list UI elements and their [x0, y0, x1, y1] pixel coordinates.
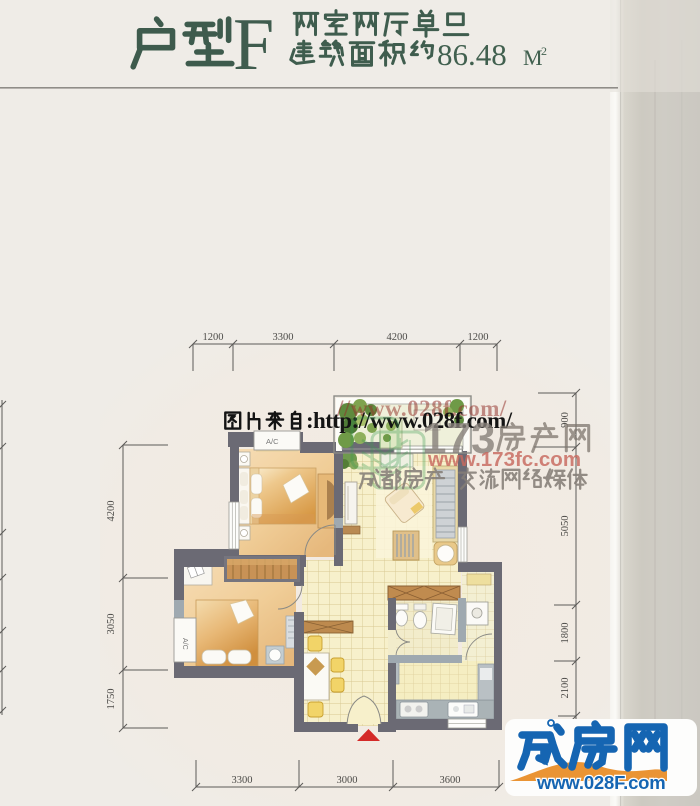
svg-text:1200: 1200 [468, 332, 489, 343]
svg-text:1750: 1750 [106, 689, 117, 710]
svg-text:3600: 3600 [440, 775, 461, 786]
svg-text:3300: 3300 [273, 332, 294, 343]
svg-text:86.48: 86.48 [437, 37, 507, 72]
svg-text:A/C: A/C [266, 437, 279, 446]
svg-text:4200: 4200 [387, 332, 408, 343]
svg-text:www.028F.com: www.028F.com [536, 772, 666, 793]
svg-text:2100: 2100 [560, 678, 571, 699]
svg-text:1200: 1200 [203, 332, 224, 343]
svg-text:2: 2 [541, 44, 547, 58]
svg-text:www.173fc.com: www.173fc.com [427, 448, 581, 471]
svg-text:5050: 5050 [560, 516, 571, 537]
svg-text:3300: 3300 [232, 775, 253, 786]
svg-text:M: M [523, 45, 543, 70]
svg-text:1800: 1800 [560, 623, 571, 644]
svg-text:3000: 3000 [337, 775, 358, 786]
svg-text:3050: 3050 [106, 614, 117, 635]
svg-text:A/C: A/C [181, 638, 188, 650]
svg-text:F: F [233, 4, 274, 86]
svg-text:4200: 4200 [106, 501, 117, 522]
